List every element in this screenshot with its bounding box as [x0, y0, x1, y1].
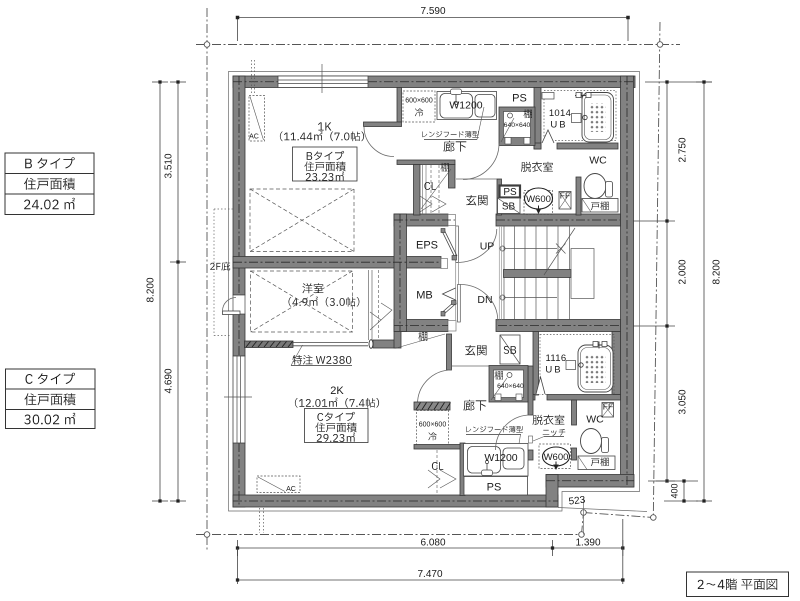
svg-text:PS: PS	[512, 92, 527, 104]
svg-text:SB: SB	[502, 202, 516, 213]
svg-text:600×600: 600×600	[419, 422, 447, 429]
svg-text:3.050: 3.050	[678, 389, 689, 414]
svg-text:600×600: 600×600	[405, 98, 433, 105]
svg-text:DN: DN	[477, 294, 492, 306]
svg-text:W1200: W1200	[484, 452, 517, 464]
svg-text:4.690: 4.690	[164, 368, 175, 393]
svg-text:UP: UP	[480, 240, 495, 252]
svg-text:PS: PS	[503, 187, 517, 198]
svg-text:WC: WC	[589, 154, 607, 166]
svg-text:3.510: 3.510	[164, 153, 175, 178]
svg-text:640×640: 640×640	[497, 383, 524, 390]
svg-text:WC: WC	[586, 413, 604, 425]
svg-text:MB: MB	[416, 289, 433, 301]
svg-text:1.390: 1.390	[575, 538, 600, 549]
svg-text:W600: W600	[544, 452, 569, 463]
svg-text:2K: 2K	[330, 385, 344, 397]
svg-text:AC: AC	[286, 486, 296, 493]
svg-text:1116: 1116	[546, 353, 567, 364]
svg-text:AC: AC	[249, 134, 259, 141]
svg-text:6.080: 6.080	[420, 538, 445, 549]
svg-text:8.200: 8.200	[146, 277, 157, 302]
svg-text:2.750: 2.750	[678, 137, 689, 162]
svg-text:523: 523	[568, 495, 586, 508]
svg-text:W600: W600	[526, 194, 551, 205]
svg-text:7.590: 7.590	[420, 6, 445, 17]
svg-text:640×640: 640×640	[504, 122, 531, 129]
svg-text:EPS: EPS	[416, 239, 438, 251]
svg-text:FF: FF	[560, 191, 570, 201]
svg-text:1014: 1014	[549, 108, 571, 119]
svg-text:W1200: W1200	[449, 99, 482, 111]
svg-text:400: 400	[669, 483, 679, 498]
svg-text:8.200: 8.200	[712, 259, 723, 284]
svg-text:PS: PS	[487, 481, 502, 493]
svg-text:FF: FF	[603, 402, 613, 412]
svg-text:UB: UB	[545, 364, 562, 375]
svg-text:7.470: 7.470	[417, 569, 442, 580]
svg-text:2.000: 2.000	[678, 259, 689, 284]
svg-text:UB: UB	[550, 119, 567, 130]
